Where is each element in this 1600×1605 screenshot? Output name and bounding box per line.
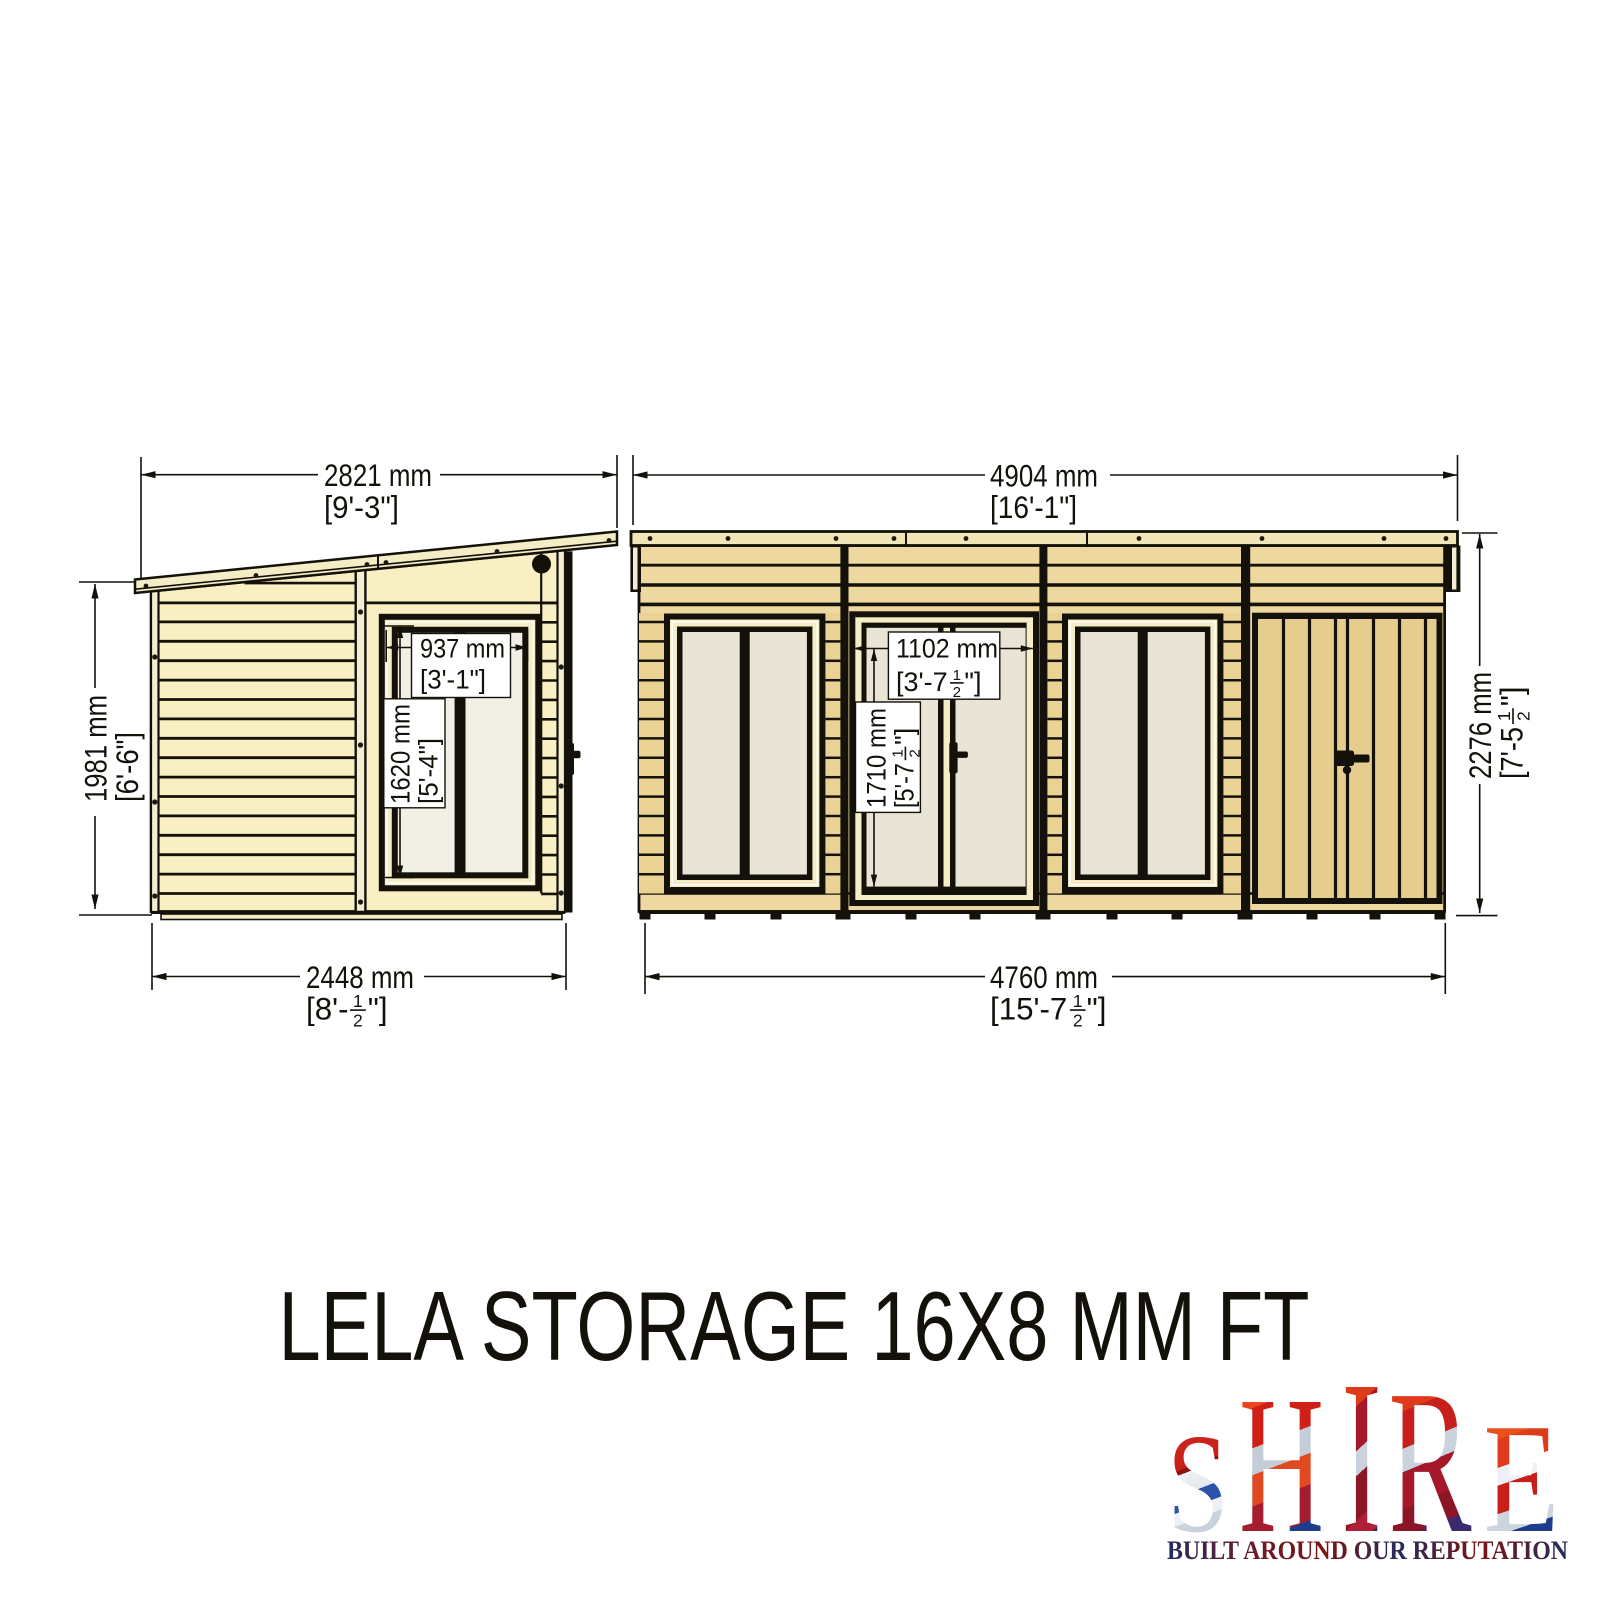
svg-text:2448 mm: 2448 mm [306, 960, 414, 995]
svg-text:"]: "] [1494, 686, 1529, 706]
svg-text:"]: "] [1087, 992, 1107, 1027]
svg-text:[15'-7: [15'-7 [990, 992, 1067, 1027]
svg-text:1: 1 [890, 749, 907, 757]
svg-text:937 mm: 937 mm [420, 634, 505, 664]
svg-text:2: 2 [906, 749, 923, 757]
svg-text:[3'-7: [3'-7 [896, 667, 948, 697]
svg-text:1620 mm: 1620 mm [386, 704, 416, 804]
svg-text:4904 mm: 4904 mm [990, 458, 1098, 493]
svg-text:[16'-1"]: [16'-1"] [990, 490, 1077, 525]
svg-text:[3'-1"]: [3'-1"] [420, 665, 486, 695]
svg-text:[6'-6"]: [6'-6"] [110, 732, 145, 802]
svg-text:BUILT AROUND OUR REPUTATION: BUILT AROUND OUR REPUTATION [1167, 1536, 1568, 1565]
svg-text:1102 mm: 1102 mm [896, 634, 998, 664]
svg-text:[7'-5: [7'-5 [1494, 727, 1529, 779]
svg-text:2: 2 [1513, 711, 1533, 721]
svg-text:2: 2 [353, 1010, 363, 1030]
svg-text:2821 mm: 2821 mm [324, 458, 432, 493]
svg-text:[8'-: [8'- [306, 992, 349, 1027]
svg-text:2276 mm: 2276 mm [1463, 672, 1498, 779]
svg-text:"]: "] [890, 728, 920, 745]
svg-text:"]: "] [964, 667, 981, 697]
svg-text:1: 1 [1494, 711, 1514, 721]
svg-text:1981 mm: 1981 mm [78, 695, 113, 802]
svg-text:1: 1 [953, 667, 961, 684]
svg-text:2: 2 [953, 684, 961, 701]
svg-text:[9'-3"]: [9'-3"] [324, 490, 399, 525]
svg-text:[5'-7: [5'-7 [890, 763, 920, 808]
svg-text:4760 mm: 4760 mm [990, 960, 1098, 995]
svg-text:"]: "] [368, 992, 388, 1027]
svg-text:[5'-4"]: [5'-4"] [414, 738, 444, 804]
svg-text:1: 1 [1073, 991, 1083, 1011]
svg-text:LELA STORAGE 16X8 MM FT: LELA STORAGE 16X8 MM FT [279, 1271, 1310, 1381]
svg-text:1: 1 [353, 991, 363, 1011]
svg-text:1710 mm: 1710 mm [861, 708, 891, 808]
svg-text:2: 2 [1073, 1010, 1083, 1030]
